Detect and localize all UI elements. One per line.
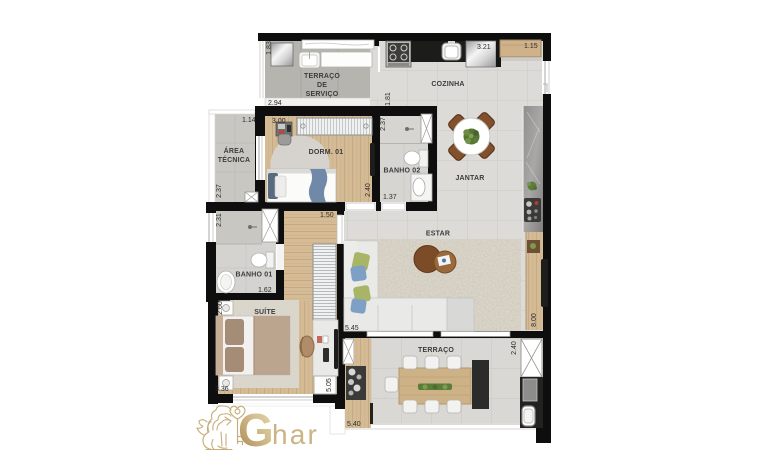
svg-text:2.40: 2.40 — [365, 183, 372, 197]
svg-text:1.62: 1.62 — [258, 287, 272, 294]
svg-text:1.37: 1.37 — [383, 194, 397, 201]
svg-text:3.36: 3.36 — [215, 386, 229, 393]
svg-text:TERRAÇO: TERRAÇO — [418, 347, 454, 354]
svg-text:5.40: 5.40 — [347, 421, 361, 428]
svg-text:SUÍTE: SUÍTE — [254, 307, 276, 316]
svg-text:2.94: 2.94 — [268, 100, 282, 107]
svg-text:SERVIÇO: SERVIÇO — [306, 91, 339, 98]
svg-text:har: har — [272, 419, 319, 450]
svg-text:BANHO 01: BANHO 01 — [236, 272, 273, 279]
svg-text:1.50: 1.50 — [320, 212, 334, 219]
svg-text:3.21: 3.21 — [477, 44, 491, 51]
svg-text:ESTAR: ESTAR — [426, 231, 450, 238]
svg-text:2.31: 2.31 — [216, 213, 223, 227]
svg-text:5.45: 5.45 — [345, 325, 359, 332]
svg-text:G: G — [238, 404, 274, 456]
svg-text:2.37: 2.37 — [380, 117, 387, 131]
svg-text:JANTAR: JANTAR — [455, 175, 484, 182]
svg-text:TERRAÇO: TERRAÇO — [304, 73, 340, 80]
svg-text:8.00: 8.00 — [531, 313, 538, 327]
svg-text:3.00: 3.00 — [272, 118, 286, 125]
svg-text:1.81: 1.81 — [385, 92, 392, 106]
svg-text:2.37: 2.37 — [216, 184, 223, 198]
svg-text:1.83: 1.83 — [266, 41, 273, 55]
svg-text:5.05: 5.05 — [326, 378, 333, 392]
svg-text:DE: DE — [317, 82, 327, 89]
svg-text:COZINHA: COZINHA — [431, 81, 464, 88]
svg-text:1.15: 1.15 — [524, 43, 538, 50]
svg-text:TÉCNICA: TÉCNICA — [218, 155, 251, 164]
svg-text:BANHO 02: BANHO 02 — [384, 168, 421, 175]
svg-text:2.60: 2.60 — [217, 301, 224, 315]
svg-text:1.14: 1.14 — [242, 117, 256, 124]
svg-text:DORM. 01: DORM. 01 — [309, 149, 344, 156]
svg-text:ÁREA: ÁREA — [224, 146, 245, 155]
svg-text:2.40: 2.40 — [511, 341, 518, 355]
